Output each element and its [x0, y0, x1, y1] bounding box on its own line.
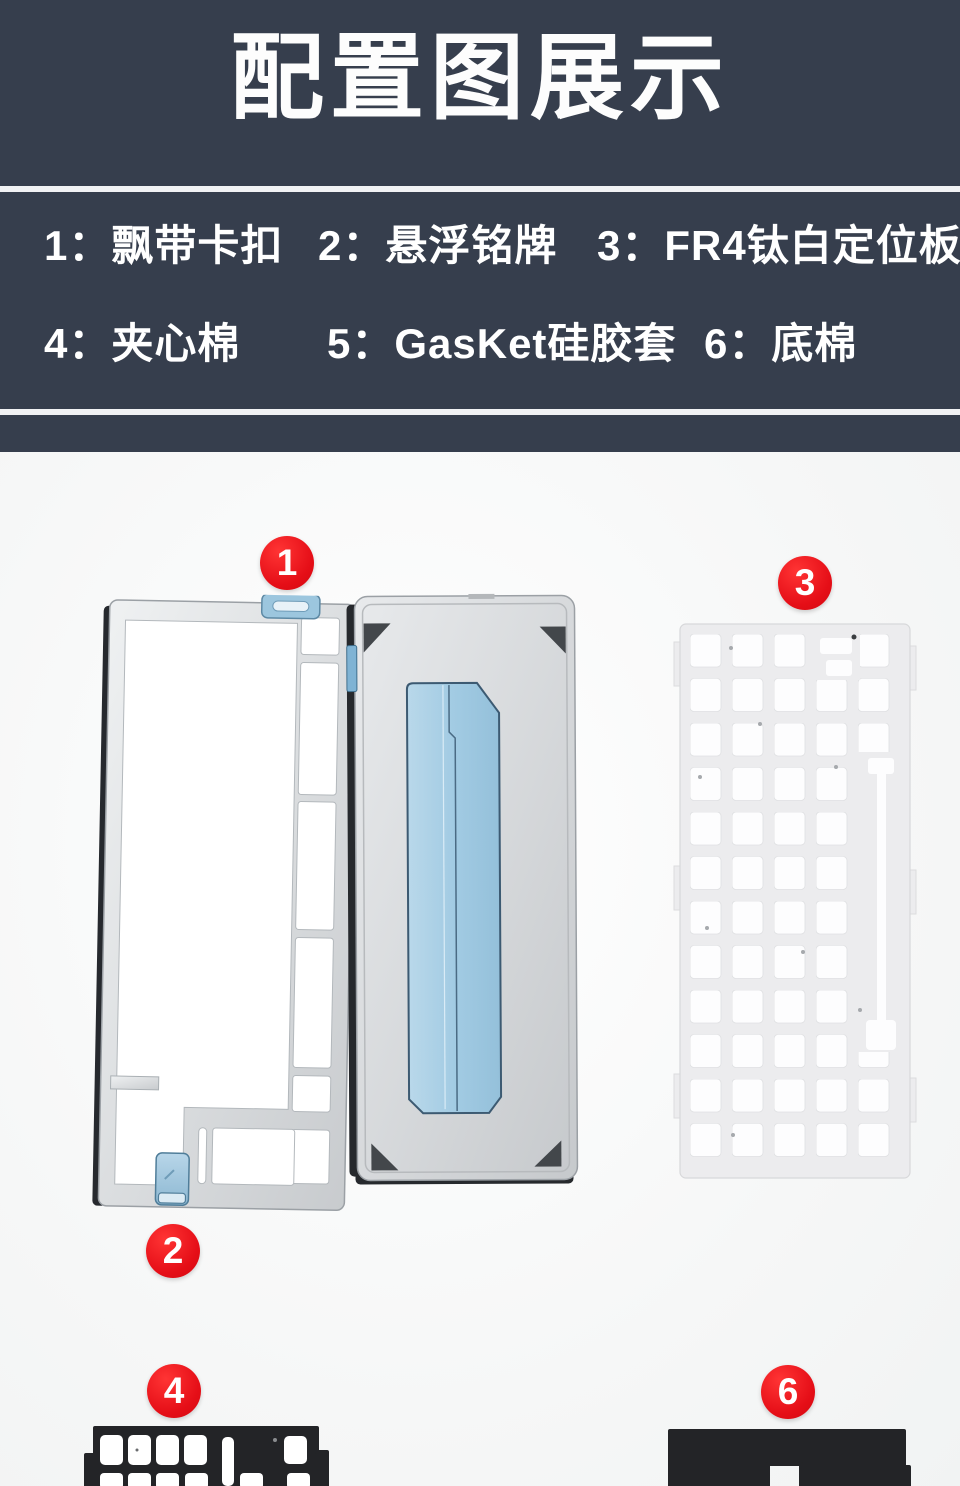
nameplate-graphic — [155, 1153, 189, 1206]
header-band: 配置图展示 — [0, 0, 960, 186]
fr4-plate-illustration — [672, 616, 918, 1186]
legend-band: 1：飘带卡扣 2：悬浮铭牌 3：FR4钛白定位板 4：夹心棉 5：GasKet硅… — [0, 192, 960, 409]
part-marker-1: 1 — [260, 536, 314, 590]
legend-item-3: 3：FR4钛白定位板 — [597, 222, 960, 270]
bottom-foam-illustration — [662, 1426, 912, 1486]
frame-main-window — [115, 620, 298, 1187]
legend-item-2: 2：悬浮铭牌 — [318, 222, 557, 270]
part-marker-3: 3 — [778, 556, 832, 610]
frame-step-tab — [111, 1076, 159, 1090]
frame-slot-cutout — [198, 1128, 207, 1184]
plate-stabilizer-slot — [856, 752, 902, 1052]
part-marker-6: 6 — [761, 1365, 815, 1419]
part-marker-4: 4 — [147, 1364, 201, 1418]
frame-lower-cutout — [212, 1128, 295, 1186]
plate-dark-hole — [852, 635, 857, 640]
legend-item-1: 1：飘带卡扣 — [44, 222, 283, 270]
parts-display-area: 1 2 3 4 6 — [0, 452, 960, 1486]
part-marker-2: 2 — [146, 1224, 200, 1278]
top-frame-illustration — [80, 591, 362, 1226]
bottom-foam-body — [670, 1431, 909, 1486]
gasket-panel-graphic — [407, 683, 501, 1113]
legend-band-tail — [0, 415, 960, 452]
case-top-notch — [468, 594, 494, 599]
sandwich-foam-illustration — [82, 1422, 332, 1486]
bottom-case-illustration — [340, 591, 583, 1192]
foam-hole-dot-2 — [136, 1449, 139, 1452]
side-latch-graphic — [347, 646, 357, 692]
foam-hole-dot — [273, 1438, 277, 1442]
page-title: 配置图展示 — [0, 24, 960, 132]
legend-item-6: 6：底棉 — [704, 320, 857, 368]
ribbon-clip-graphic — [262, 594, 320, 619]
legend-item-4: 4：夹心棉 — [44, 320, 240, 368]
infographic-page: 配置图展示 1：飘带卡扣 2：悬浮铭牌 3：FR4钛白定位板 4：夹心棉 5：G… — [0, 0, 960, 1486]
legend-item-5: 5：GasKet硅胶套 — [327, 320, 676, 368]
